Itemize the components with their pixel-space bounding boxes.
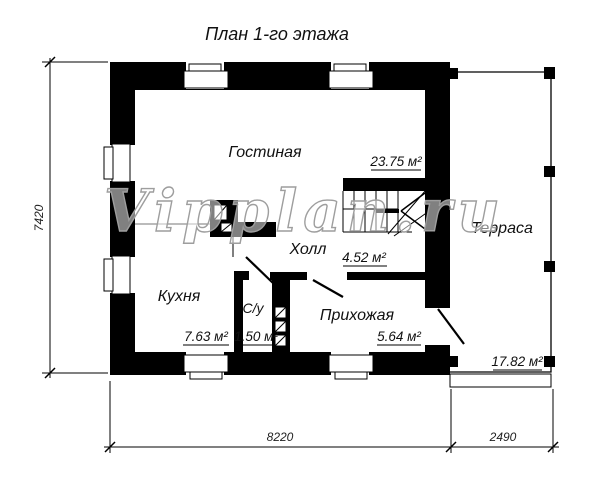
window-top-1 bbox=[184, 64, 228, 88]
window-left-2 bbox=[104, 256, 130, 294]
dimension-height-label: 7420 bbox=[32, 204, 46, 231]
room-label-wc: С/у bbox=[243, 300, 265, 316]
entry-top-wall-left bbox=[270, 272, 307, 280]
room-area-entry: 5.64 м² bbox=[377, 329, 421, 344]
room-label-entry: Прихожая bbox=[320, 307, 395, 324]
room-label-kitchen: Кухня bbox=[158, 288, 201, 305]
room-area-kitchen: 7.63 м² bbox=[184, 329, 228, 344]
dimension-house-width-label: 8220 bbox=[267, 430, 294, 444]
watermark-text: Vipplan.ru bbox=[104, 177, 506, 245]
floor-plan-drawing: План 1-го этажа bbox=[0, 0, 600, 485]
room-area-hall: 4.52 м² bbox=[342, 250, 386, 265]
floor-plan-page: План 1-го этажа bbox=[0, 0, 600, 485]
entry-top-wall-right bbox=[347, 272, 430, 280]
terrace-door-opening bbox=[425, 308, 450, 345]
dimension-terrace-width-label: 2490 bbox=[489, 430, 517, 444]
terrace-step bbox=[450, 374, 551, 387]
dimension-left bbox=[42, 57, 108, 378]
window-bottom-2 bbox=[329, 355, 373, 379]
wc-left-wall-cap bbox=[234, 271, 249, 280]
plan-title: План 1-го этажа bbox=[205, 24, 349, 44]
room-area-living: 23.75 м² bbox=[369, 154, 422, 169]
window-bottom-1 bbox=[184, 355, 228, 379]
room-area-wc: 1.50 м² bbox=[234, 329, 278, 344]
window-top-2 bbox=[329, 64, 373, 88]
room-area-terrace: 17.82 м² bbox=[491, 354, 543, 369]
room-label-living: Гостиная bbox=[228, 144, 302, 161]
